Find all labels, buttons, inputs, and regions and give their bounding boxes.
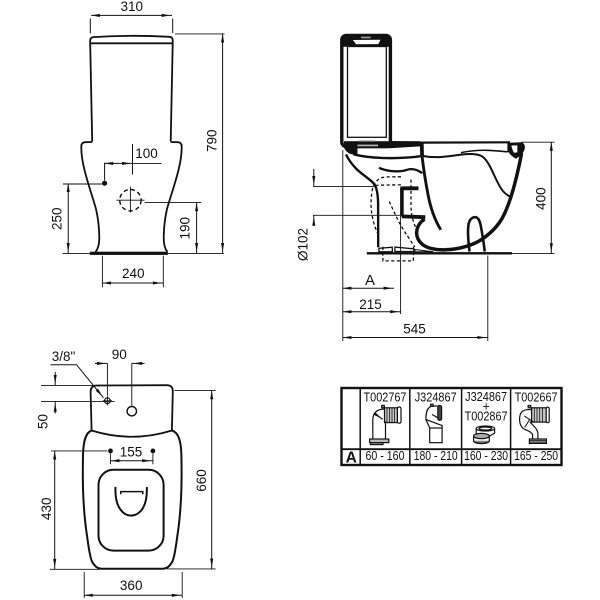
svg-text:160 - 230: 160 - 230 (464, 449, 508, 463)
svg-text:240: 240 (122, 266, 145, 281)
svg-text:215: 215 (359, 297, 382, 312)
svg-text:3/8": 3/8" (52, 349, 76, 364)
svg-text:660: 660 (194, 469, 209, 492)
svg-text:165 - 250: 165 - 250 (514, 449, 558, 463)
svg-text:155: 155 (120, 445, 143, 460)
svg-text:90: 90 (112, 347, 127, 362)
svg-text:A: A (365, 272, 375, 289)
svg-text:100: 100 (135, 146, 158, 161)
svg-text:180 - 210: 180 - 210 (414, 449, 458, 463)
svg-text:400: 400 (534, 187, 549, 210)
svg-text:T002767: T002767 (364, 391, 407, 405)
svg-text:250: 250 (50, 207, 65, 230)
svg-text:60 - 160: 60 - 160 (366, 449, 405, 463)
svg-text:360: 360 (120, 578, 143, 593)
svg-text:T002667: T002667 (515, 391, 558, 405)
svg-text:190: 190 (178, 217, 193, 240)
svg-text:545: 545 (403, 322, 426, 337)
svg-text:50: 50 (36, 414, 51, 429)
svg-text:790: 790 (205, 129, 220, 152)
svg-text:T002867: T002867 (465, 410, 508, 424)
svg-text:J324867: J324867 (415, 391, 457, 405)
svg-text:Ø102: Ø102 (296, 228, 311, 261)
svg-text:A: A (346, 449, 357, 466)
svg-text:430: 430 (39, 497, 54, 520)
svg-text:310: 310 (121, 0, 144, 14)
